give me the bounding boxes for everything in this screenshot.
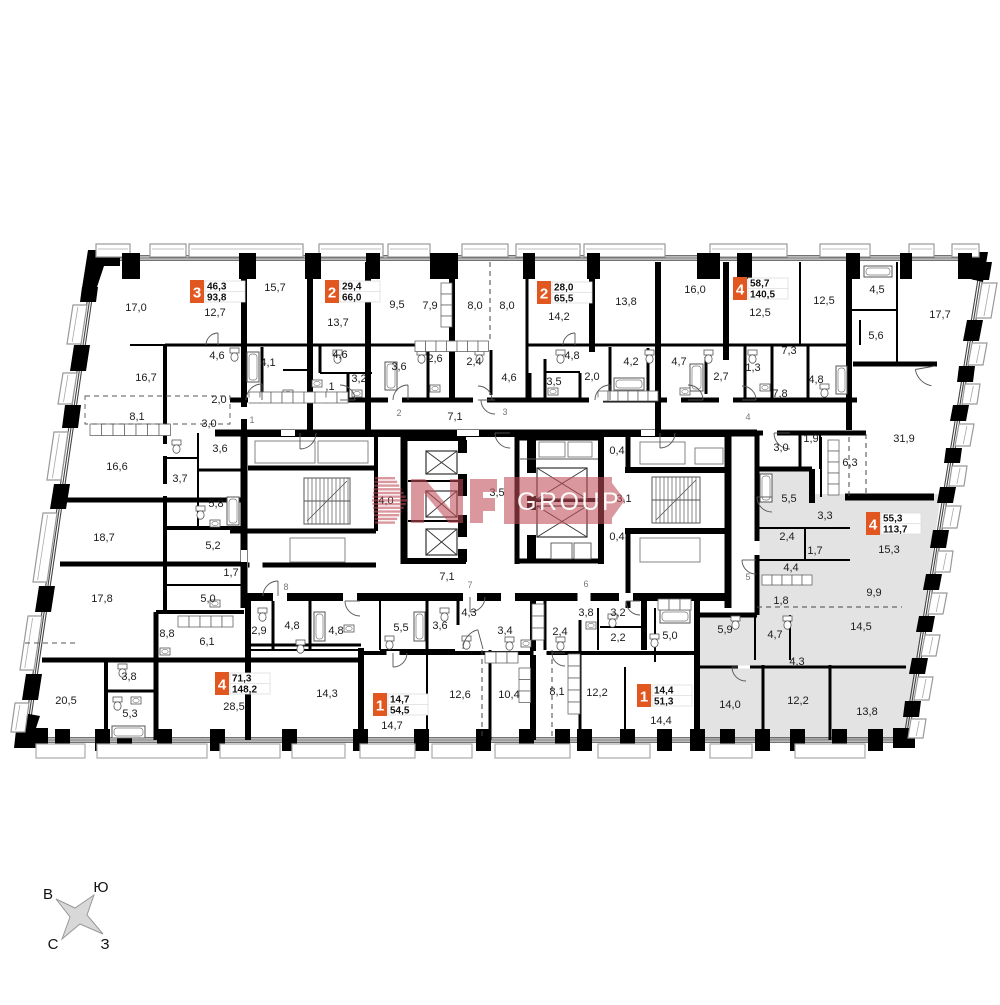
svg-text:17,0: 17,0 [125, 302, 146, 314]
svg-text:8: 8 [283, 582, 288, 592]
svg-text:2,4: 2,4 [779, 531, 794, 543]
svg-text:4: 4 [218, 677, 227, 694]
svg-text:5,5: 5,5 [393, 622, 408, 634]
svg-text:2,4: 2,4 [466, 356, 481, 368]
svg-text:12,7: 12,7 [204, 307, 225, 319]
svg-text:55,3: 55,3 [883, 514, 903, 525]
svg-text:5,6: 5,6 [868, 330, 883, 342]
svg-text:2,9: 2,9 [251, 625, 266, 637]
svg-text:2,6: 2,6 [427, 353, 442, 365]
svg-text:3,8: 3,8 [121, 671, 136, 683]
svg-text:7,8: 7,8 [772, 388, 787, 400]
svg-text:29,4: 29,4 [342, 282, 362, 293]
svg-text:12,2: 12,2 [586, 687, 607, 699]
svg-text:Ю: Ю [93, 879, 108, 896]
svg-text:7,3: 7,3 [781, 345, 796, 357]
svg-text:3,2: 3,2 [351, 373, 366, 385]
svg-text:7,1: 7,1 [439, 571, 454, 583]
svg-text:1,7: 1,7 [223, 567, 238, 579]
svg-text:8,1: 8,1 [129, 411, 144, 423]
svg-text:4,8: 4,8 [808, 374, 823, 386]
svg-text:2,0: 2,0 [584, 371, 599, 383]
svg-text:4: 4 [869, 517, 878, 534]
svg-text:51,3: 51,3 [654, 697, 674, 708]
svg-text:8,0: 8,0 [467, 300, 482, 312]
svg-text:4,8: 4,8 [284, 620, 299, 632]
svg-text:71,3: 71,3 [232, 674, 252, 685]
svg-text:0,4: 0,4 [609, 531, 624, 543]
svg-text:3,4: 3,4 [497, 625, 512, 637]
svg-text:5,0: 5,0 [662, 630, 677, 642]
svg-text:12,2: 12,2 [787, 695, 808, 707]
svg-text:3,6: 3,6 [212, 443, 227, 455]
svg-text:12,6: 12,6 [449, 689, 470, 701]
svg-text:5,5: 5,5 [781, 493, 796, 505]
svg-text:17,8: 17,8 [91, 593, 112, 605]
svg-text:13,7: 13,7 [327, 317, 348, 329]
svg-text:5,0: 5,0 [200, 593, 215, 605]
svg-text:15,3: 15,3 [878, 544, 899, 556]
svg-text:58,7: 58,7 [750, 279, 770, 290]
svg-text:8,0: 8,0 [499, 300, 514, 312]
svg-text:4,1: 4,1 [260, 357, 275, 369]
svg-text:6: 6 [583, 579, 588, 589]
svg-text:12,5: 12,5 [813, 295, 834, 307]
svg-text:140,5: 140,5 [750, 290, 775, 301]
svg-text:4,7: 4,7 [671, 356, 686, 368]
svg-text:4,8: 4,8 [564, 350, 579, 362]
svg-text:31,9: 31,9 [893, 433, 914, 445]
svg-text:3,6: 3,6 [391, 361, 406, 373]
svg-text:4,7: 4,7 [767, 629, 782, 641]
svg-text:18,7: 18,7 [93, 532, 114, 544]
svg-text:14,0: 14,0 [719, 699, 740, 711]
svg-text:12,5: 12,5 [749, 307, 770, 319]
svg-text:54,5: 54,5 [390, 706, 410, 717]
svg-text:GROUP: GROUP [517, 488, 621, 516]
svg-text:93,8: 93,8 [207, 293, 227, 304]
svg-text:4,6: 4,6 [501, 372, 516, 384]
svg-text:1,9: 1,9 [803, 433, 818, 445]
svg-text:9,9: 9,9 [866, 587, 881, 599]
svg-text:1: 1 [640, 689, 648, 706]
svg-text:7: 7 [467, 580, 472, 590]
svg-text:5,9: 5,9 [717, 624, 732, 636]
svg-text:5,3: 5,3 [122, 708, 137, 720]
svg-text:2,4: 2,4 [552, 626, 567, 638]
svg-text:113,7: 113,7 [883, 525, 908, 536]
svg-text:2,7: 2,7 [713, 371, 728, 383]
svg-text:2: 2 [540, 286, 548, 303]
svg-text:66,0: 66,0 [342, 293, 362, 304]
svg-text:14,7: 14,7 [381, 720, 402, 732]
svg-text:7,1: 7,1 [447, 411, 462, 423]
svg-text:1: 1 [376, 698, 384, 715]
svg-text:4,5: 4,5 [869, 284, 884, 296]
svg-text:28,0: 28,0 [554, 283, 574, 294]
svg-text:28,5: 28,5 [223, 701, 244, 713]
svg-text:16,6: 16,6 [106, 461, 127, 473]
svg-text:9,5: 9,5 [389, 299, 404, 311]
svg-text:3,5: 3,5 [546, 376, 561, 388]
svg-text:20,5: 20,5 [55, 695, 76, 707]
svg-text:4,6: 4,6 [332, 349, 347, 361]
svg-text:1,7: 1,7 [807, 545, 822, 557]
svg-text:14,7: 14,7 [390, 695, 410, 706]
svg-text:17,7: 17,7 [929, 309, 950, 321]
svg-text:3,7: 3,7 [172, 473, 187, 485]
svg-text:8,8: 8,8 [159, 628, 174, 640]
svg-text:13,8: 13,8 [856, 706, 877, 718]
svg-text:3,2: 3,2 [610, 607, 625, 619]
svg-text:4,3: 4,3 [461, 607, 476, 619]
svg-text:5,8: 5,8 [208, 498, 223, 510]
svg-text:2: 2 [396, 408, 401, 418]
svg-text:14,4: 14,4 [650, 715, 671, 727]
svg-text:4,4: 4,4 [783, 562, 798, 574]
svg-text:4: 4 [745, 412, 750, 422]
svg-text:3,6: 3,6 [432, 620, 447, 632]
svg-text:14,2: 14,2 [548, 311, 569, 323]
svg-text:З: З [100, 936, 109, 953]
svg-text:5: 5 [745, 572, 750, 582]
svg-text:2,2: 2,2 [610, 632, 625, 644]
svg-text:,1: ,1 [325, 381, 334, 393]
svg-text:1: 1 [249, 415, 254, 425]
svg-text:65,5: 65,5 [554, 294, 574, 305]
svg-text:13,8: 13,8 [615, 296, 636, 308]
svg-text:8,1: 8,1 [549, 686, 564, 698]
svg-text:15,7: 15,7 [264, 282, 285, 294]
svg-text:3: 3 [502, 407, 507, 417]
svg-text:3,0: 3,0 [201, 418, 216, 430]
svg-text:4: 4 [736, 282, 745, 299]
svg-text:4,6: 4,6 [209, 350, 224, 362]
svg-text:1,8: 1,8 [773, 595, 788, 607]
svg-text:3: 3 [193, 285, 201, 302]
svg-text:16,7: 16,7 [135, 372, 156, 384]
svg-text:4,3: 4,3 [789, 656, 804, 668]
svg-text:14,3: 14,3 [316, 688, 337, 700]
svg-text:3,0: 3,0 [773, 442, 788, 454]
svg-text:2: 2 [328, 285, 336, 302]
svg-text:14,5: 14,5 [850, 621, 871, 633]
svg-text:1,3: 1,3 [745, 362, 760, 374]
svg-text:5,2: 5,2 [205, 540, 220, 552]
svg-text:0,4: 0,4 [609, 445, 624, 457]
svg-text:3,8: 3,8 [578, 607, 593, 619]
svg-text:В: В [43, 886, 53, 903]
svg-text:6,1: 6,1 [199, 636, 214, 648]
svg-text:4,2: 4,2 [623, 356, 638, 368]
svg-text:16,0: 16,0 [684, 284, 705, 296]
svg-text:С: С [48, 936, 59, 953]
svg-text:14,4: 14,4 [654, 686, 674, 697]
svg-text:2,0: 2,0 [211, 394, 226, 406]
svg-text:3,3: 3,3 [817, 510, 832, 522]
svg-text:6,3: 6,3 [842, 457, 857, 469]
svg-text:4,8: 4,8 [328, 625, 343, 637]
svg-text:46,3: 46,3 [207, 282, 227, 293]
svg-text:148,2: 148,2 [232, 685, 257, 696]
svg-text:10,4: 10,4 [498, 689, 519, 701]
svg-text:7,9: 7,9 [422, 300, 437, 312]
